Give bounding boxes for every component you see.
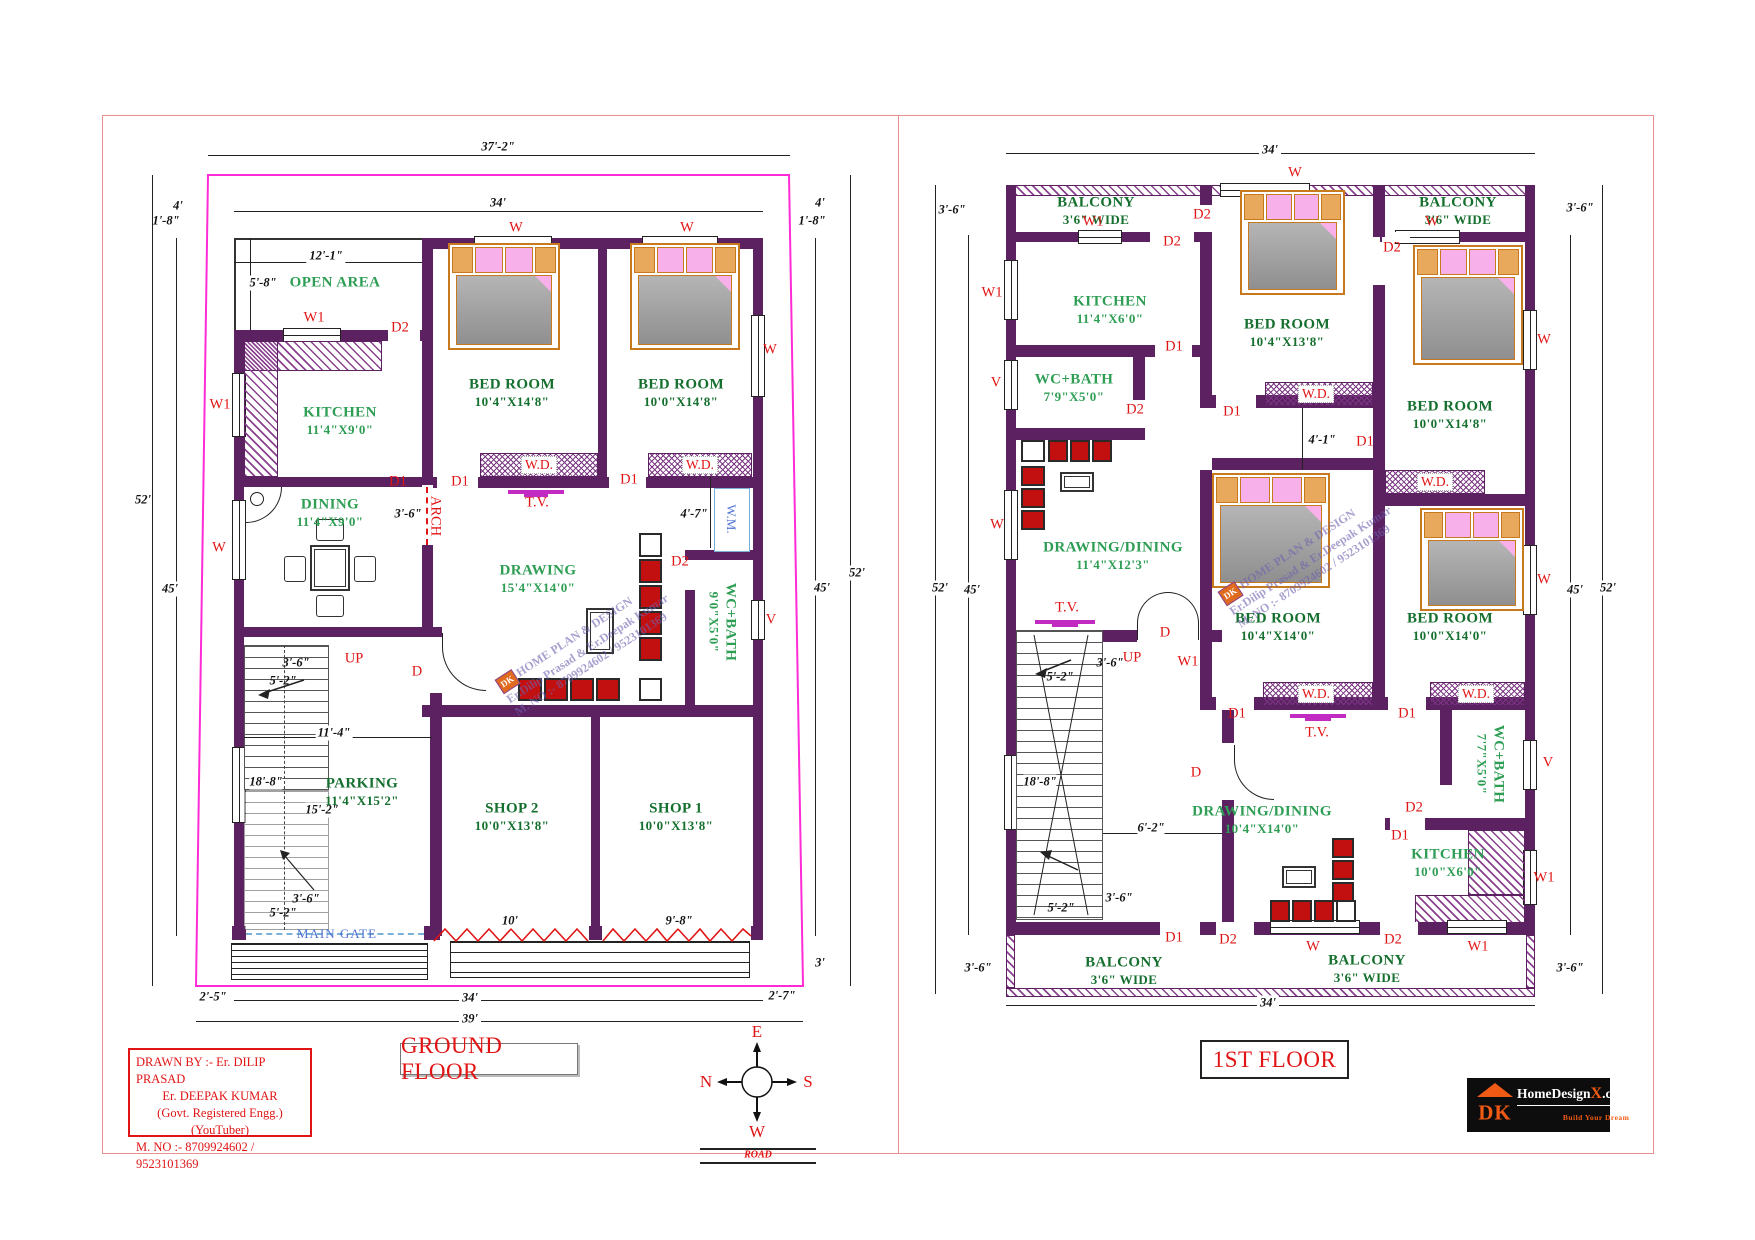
door-label: D2: [1193, 207, 1211, 224]
window-label: W: [1537, 332, 1551, 349]
dim-label: 4'-7": [680, 507, 707, 522]
tv-label: T.V.: [525, 495, 549, 512]
bedroom-label: BED ROOM: [1244, 317, 1330, 334]
window-label: W: [212, 540, 226, 557]
parking-label: PARKING: [326, 776, 399, 793]
dim-line: [850, 175, 851, 986]
dim-label: 3'-6": [1105, 891, 1132, 906]
dim-label: 4': [815, 196, 825, 211]
window-label: W: [509, 220, 523, 237]
door-label: D1: [1165, 339, 1183, 356]
chair: [284, 556, 306, 582]
sofa-corner: [1336, 900, 1356, 922]
kitchen-counter: [244, 341, 278, 477]
shutter-zigzag: [603, 928, 751, 942]
wd-label: W.D.: [1458, 685, 1494, 703]
dim-label: 34': [1257, 996, 1279, 1011]
cabinet: [1021, 440, 1045, 462]
shop2-label: SHOP 2: [485, 801, 539, 818]
bedroom-size: 10'0"X14'8": [1413, 416, 1487, 432]
door-label: D1: [1223, 404, 1241, 421]
balcony-label: BALCONY: [1085, 955, 1163, 972]
window-label: W1: [210, 397, 231, 414]
shutter-zigzag: [434, 928, 588, 942]
balcony-label: BALCONY: [1057, 195, 1135, 212]
window-label: W: [680, 220, 694, 237]
wall: [430, 693, 442, 707]
sofa: [1314, 900, 1334, 922]
road-label: ROAD: [744, 1150, 772, 1161]
wd-label: W.D.: [1298, 685, 1334, 703]
window-label: W: [1306, 939, 1320, 956]
dim-label: 3': [815, 956, 825, 971]
dim-label: 3'-6": [394, 507, 421, 522]
logo-dk-text: DK: [1478, 1101, 1512, 1126]
wd-label: W.D.: [1298, 385, 1334, 403]
wall: [1373, 285, 1385, 408]
dim-label: 45': [1567, 583, 1583, 598]
wall: [234, 238, 236, 330]
vent-v: [1004, 360, 1018, 410]
window-w: [1270, 920, 1360, 934]
kitchen-label: KITCHEN: [1411, 847, 1485, 864]
vent-label: V: [766, 612, 776, 629]
dim-line: [152, 175, 153, 986]
wall: [1200, 185, 1212, 205]
drawing-dining-label: DRAWING/DINING: [1192, 804, 1332, 821]
dim-line: [1302, 408, 1303, 470]
drawing-dining-size: 11'4"X12'3": [1076, 557, 1150, 573]
wall: [1212, 458, 1373, 470]
dim-label: 12'-1": [306, 249, 345, 264]
wall: [1440, 710, 1452, 785]
cabinet: [1070, 440, 1090, 462]
dim-label: 6'-2": [1137, 821, 1164, 836]
compass-south: S: [803, 1072, 812, 1092]
dim-label: 1'-8": [152, 214, 179, 229]
dim-line: [234, 211, 763, 212]
window-w: [1523, 310, 1537, 370]
drawing-size: 15'4"X14'0": [501, 580, 575, 596]
ground-floor-title-text: GROUND FLOOR: [401, 1033, 577, 1085]
drawn-by-line: M. NO :- 8709924602 / 9523101369: [136, 1139, 304, 1173]
door-label: D1: [1356, 434, 1374, 451]
balcony-label: BALCONY: [1419, 195, 1497, 212]
dim-label: 3'-6": [1096, 656, 1123, 671]
compass-west: W: [749, 1122, 765, 1142]
first-floor-title-text: 1ST FLOOR: [1213, 1047, 1337, 1073]
dim-label: 5'-2": [1047, 901, 1074, 916]
bedroom-label: BED ROOM: [1407, 611, 1493, 628]
window-w1: [1447, 920, 1507, 934]
gate-post: [751, 926, 763, 940]
dim-label: 52': [849, 566, 865, 581]
dim-label: 5'-8": [249, 276, 276, 291]
table: [1060, 472, 1094, 492]
dim-label: 4'-1": [1308, 433, 1335, 448]
wall: [422, 705, 763, 717]
sofa: [1270, 900, 1290, 922]
wcbath-size: 9'0"X5'0": [706, 583, 722, 662]
shop-steps: [450, 941, 750, 978]
dim-line: [208, 155, 790, 156]
dim-label: 3'-6": [292, 892, 319, 907]
wall: [433, 477, 763, 488]
shop1-label: SHOP 1: [649, 801, 703, 818]
cabinet: [1021, 510, 1045, 530]
dining-label: DINING: [301, 497, 359, 514]
bedroom-size: 10'4"X13'8": [1250, 334, 1324, 350]
window-label: W: [1288, 165, 1302, 182]
cabinet: [1021, 466, 1045, 486]
dim-label: 52': [135, 493, 151, 508]
tv-label: T.V.: [1305, 725, 1329, 742]
cabinet: [1021, 488, 1045, 508]
window-label: W1: [304, 310, 325, 327]
dim-label: 10': [502, 914, 518, 929]
kitchen-size: 11'4"X9'0": [307, 422, 374, 438]
bed-icon: [1240, 190, 1345, 295]
chair: [354, 556, 376, 582]
door-label: D1: [451, 474, 469, 491]
dim-label: 3'-6": [1556, 961, 1583, 976]
tv-icon: [1052, 624, 1078, 627]
open-area-label: OPEN AREA: [290, 275, 381, 292]
wall: [1200, 232, 1212, 408]
drawn-by-line: (YouTuber): [136, 1122, 304, 1139]
wcbath-label: WC+BATH: [1035, 372, 1114, 389]
up-label: UP: [345, 651, 364, 668]
bed-icon: [1420, 508, 1524, 611]
door-label: D2: [671, 554, 689, 571]
drawn-by-line: DRAWN BY :- Er. DILIP PRASAD: [136, 1054, 304, 1088]
dim-label: 45': [814, 581, 830, 596]
tv-label: T.V.: [1055, 600, 1079, 617]
vent-v: [1523, 740, 1537, 790]
vent-label: V: [991, 375, 1001, 392]
door-label: D2: [1163, 234, 1181, 251]
wm-label: W.M.: [723, 504, 739, 533]
door-label: D1: [1165, 930, 1183, 947]
door-label: D2: [1384, 932, 1402, 949]
drawing-dining-label: DRAWING/DINING: [1043, 540, 1183, 557]
dim-label: 37'-2": [478, 140, 517, 155]
window-label: W1: [1468, 939, 1489, 956]
door-label: D1: [620, 472, 638, 489]
window-label: W1: [1178, 654, 1199, 671]
dim-label: 45': [964, 583, 980, 598]
dim-label: 5'-2": [269, 674, 296, 689]
wd-label: W.D.: [1417, 473, 1453, 491]
road-line: [700, 1162, 816, 1164]
sink-icon: [250, 492, 264, 506]
wcbath-size: 7'9"X5'0": [1044, 389, 1105, 405]
door-label: D1: [389, 474, 407, 491]
sofa: [639, 637, 662, 661]
wd-label: W.D.: [682, 456, 718, 474]
dim-line: [196, 1021, 803, 1022]
dim-label: 4': [173, 199, 183, 214]
dim-label: 3'-6": [282, 656, 309, 671]
compass-icon: [715, 1040, 799, 1124]
window-w1: [283, 328, 341, 342]
dim-label: 2'-7": [768, 989, 795, 1004]
compass-north: N: [700, 1072, 712, 1092]
wall: [1200, 470, 1212, 710]
sofa-corner: [639, 533, 662, 557]
window-label: W1: [1534, 870, 1555, 887]
bedroom-label: BED ROOM: [638, 377, 724, 394]
sofa: [1332, 882, 1354, 902]
up-label: UP: [1123, 650, 1142, 667]
wall-hatched: [1006, 935, 1015, 988]
entry-steps: [231, 943, 428, 980]
shop1-size: 10'0"X13'8": [639, 818, 713, 834]
cabinet: [1092, 440, 1112, 462]
door-label: D2: [1219, 932, 1237, 949]
sofa: [1332, 838, 1354, 858]
vent-label: V: [1543, 755, 1553, 772]
window-w: [232, 500, 246, 580]
logo-house-roof-icon: [1477, 1083, 1513, 1097]
vent-v: [751, 600, 765, 640]
gate-post: [589, 926, 602, 940]
dining-size: 11'4"X9'0": [297, 514, 364, 530]
dim-line: [710, 477, 711, 548]
balcony-size: 3'6" WIDE: [1091, 972, 1158, 988]
logo-name: HomeDesign: [1517, 1086, 1591, 1101]
door-label: D2: [391, 320, 409, 337]
door-label: D2: [1383, 240, 1401, 257]
door-label: D1: [1398, 706, 1416, 723]
wall: [591, 717, 600, 930]
door-label: D: [412, 664, 422, 681]
cabinet: [1048, 440, 1068, 462]
dim-label: 18'-8": [249, 775, 282, 790]
window-label: W: [990, 517, 1004, 534]
drawn-by-line: Er. DEEPAK KUMAR: [136, 1088, 304, 1105]
window-label: W1: [1083, 214, 1104, 231]
window-label: W: [1425, 214, 1439, 231]
wall: [1200, 630, 1222, 642]
logo-com: .com: [1602, 1086, 1629, 1101]
wall: [1373, 185, 1385, 237]
center-table: [1282, 866, 1316, 888]
chair: [316, 595, 344, 617]
dim-label: 18'-8": [1023, 775, 1056, 790]
first-floor-title: 1ST FLOOR: [1200, 1040, 1349, 1079]
parking-size: 11'4"X15'2": [325, 793, 399, 809]
bedroom-size: 10'0"X14'0": [1413, 628, 1487, 644]
wall: [422, 249, 433, 485]
bed-icon: [1413, 245, 1523, 365]
sofa: [1332, 860, 1354, 880]
compass-east: E: [752, 1022, 762, 1042]
bedroom-label: BED ROOM: [469, 377, 555, 394]
window-label: W1: [982, 285, 1003, 302]
bed-icon: [630, 243, 740, 350]
wcbath-name: WC+BATH: [1490, 725, 1507, 804]
dim-label: 39': [459, 1012, 481, 1027]
wall-hatched: [1526, 935, 1535, 988]
bed-icon: [448, 243, 560, 350]
window-w: [1523, 545, 1537, 615]
bedroom-size: 10'4"X14'8": [475, 394, 549, 410]
door-label: D: [1191, 765, 1201, 782]
wall: [685, 590, 695, 705]
window-w1: [1004, 260, 1018, 320]
dim-label: 45': [162, 582, 178, 597]
dim-label: 52': [932, 581, 948, 596]
ground-floor-title: GROUND FLOOR: [400, 1043, 578, 1075]
bedroom-label: BED ROOM: [1407, 399, 1493, 416]
dim-label: 3'-6": [1566, 201, 1593, 216]
wcbath-label: WC+BATH 9'0"X5'0": [706, 583, 739, 662]
door-label: D2: [1405, 800, 1423, 817]
drawing-label: DRAWING: [500, 563, 577, 580]
sofa-corner: [639, 678, 662, 701]
sofa: [596, 678, 620, 701]
window-label: W: [1537, 572, 1551, 589]
dim-label: 9'-8": [665, 914, 692, 929]
logo-tagline: Build Your Dream: [1563, 1113, 1630, 1122]
door-label: D2: [1126, 402, 1144, 419]
main-gate-label: MAIN GATE: [297, 926, 377, 942]
dim-label: 34': [487, 196, 509, 211]
dim-label: 5'-2": [269, 906, 296, 921]
balcony-size: 3'6" WIDE: [1334, 970, 1401, 986]
drawn-by-line: (Govt. Registered Engg.): [136, 1105, 304, 1122]
drawn-by-box: DRAWN BY :- Er. DILIP PRASAD Er. DEEPAK …: [128, 1048, 312, 1137]
wall: [234, 627, 432, 637]
door-label: D1: [1228, 706, 1246, 723]
dim-label: 3'-6": [938, 203, 965, 218]
window-label: W: [763, 342, 777, 359]
shop2-size: 10'0"X13'8": [475, 818, 549, 834]
wall: [430, 717, 442, 936]
wall: [1133, 357, 1145, 400]
window-w1: [1078, 230, 1122, 244]
wall: [234, 238, 422, 240]
bedroom-size: 10'0"X14'8": [644, 394, 718, 410]
kitchen-size: 10'0"X6'0": [1414, 864, 1482, 880]
dim-label: 1'-8": [798, 214, 825, 229]
wcbath-label: WC+BATH 7'7"X5'0": [1474, 725, 1507, 804]
dim-label: 52': [1600, 581, 1616, 596]
kitchen-label: KITCHEN: [1073, 294, 1147, 311]
dim-label: 5'-2": [1046, 670, 1073, 685]
kitchen-label: KITCHEN: [303, 405, 377, 422]
kitchen-size: 11'4"X6'0": [1077, 311, 1144, 327]
dim-label: 34': [1259, 143, 1281, 158]
arch-label: ARCH: [427, 496, 444, 536]
dim-line: [234, 1000, 763, 1001]
logo-x: X: [1591, 1085, 1603, 1102]
balcony-label: BALCONY: [1328, 953, 1406, 970]
wall: [1373, 494, 1528, 506]
dim-label: 2'-5": [199, 990, 226, 1005]
tv-icon: [1305, 718, 1331, 721]
wcbath-size: 7'7"X5'0": [1474, 725, 1490, 804]
wall: [422, 545, 433, 633]
wd-label: W.D.: [521, 456, 557, 474]
wall: [1006, 428, 1145, 440]
brand-logo: DK HomeDesignX.com Build Your Dream: [1467, 1078, 1610, 1132]
wall: [598, 249, 607, 477]
wcbath-name: WC+BATH: [722, 583, 739, 662]
floor-plan-sheet: 37'-2" 34' 4' 1'-8" 4' 1'-8" 12'-1" 5'-8…: [0, 0, 1755, 1240]
sofa: [1292, 900, 1312, 922]
dim-label: 11'-4": [316, 726, 353, 741]
door-label: D1: [1391, 828, 1409, 845]
door-label: D: [1160, 625, 1170, 642]
window-w: [1004, 490, 1018, 560]
dining-table: [310, 545, 350, 591]
drawing-dining-size: 10'4"X14'0": [1225, 821, 1299, 837]
wall: [430, 627, 442, 637]
bedroom-size: 10'4"X14'0": [1241, 628, 1315, 644]
dim-label: 34': [459, 991, 481, 1006]
dim-label: 3'-6": [964, 961, 991, 976]
